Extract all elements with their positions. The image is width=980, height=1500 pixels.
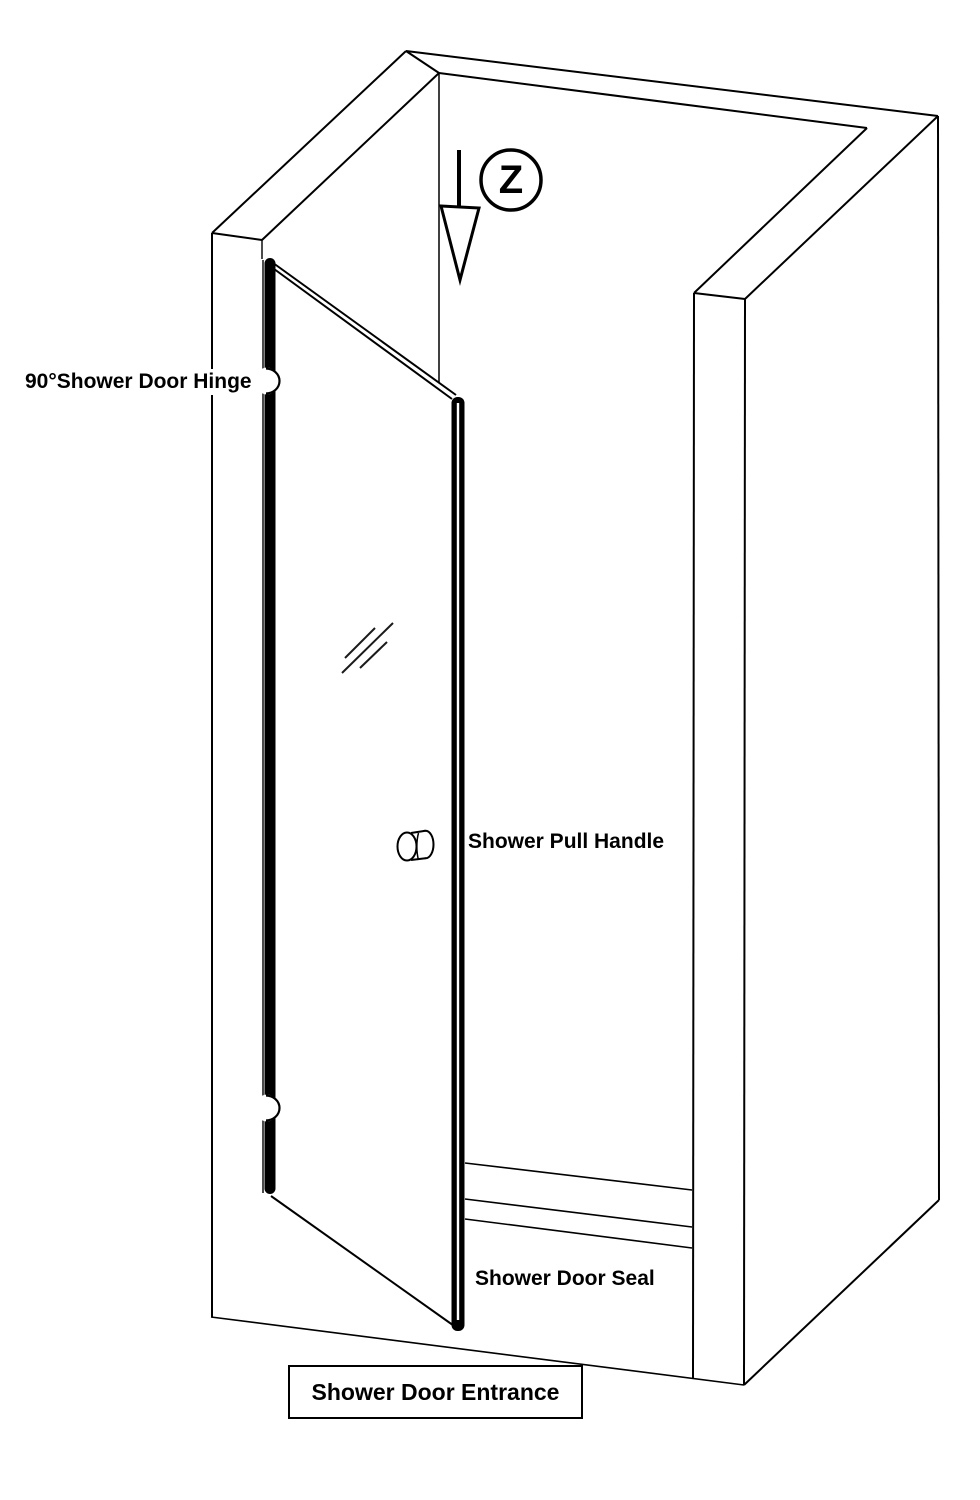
left-wall-top-inner-edge: [262, 73, 439, 240]
shower-door: [256, 258, 465, 1331]
left-wall-front-top-edge: [212, 233, 262, 240]
back-wall-top-outer-edge: [406, 51, 938, 116]
lower-door-hinge-icon: [256, 1095, 280, 1122]
right-wall-outer-edge: [938, 116, 939, 1200]
right-wall-top-inner-edge: [694, 128, 867, 293]
right-wall-bottom-edge: [744, 1200, 939, 1385]
entrance-caption-box: Shower Door Entrance: [288, 1365, 583, 1419]
hinge-callout-label: 90°Shower Door Hinge: [22, 369, 255, 395]
right-wall-front-top-edge: [694, 293, 745, 299]
hinge-side-rail: [265, 258, 276, 1194]
door-seal-callout-label: Shower Door Seal: [472, 1266, 658, 1292]
right-wall-front-inner-edge: [693, 293, 694, 1378]
right-wall-front-outer-edge: [744, 299, 745, 1385]
section-marker-letter: Z: [489, 158, 533, 202]
shower-curb-top-back-edge: [465, 1163, 692, 1190]
pull-handle-icon: [398, 831, 434, 861]
entrance-caption-text: Shower Door Entrance: [312, 1379, 560, 1406]
upper-door-hinge-icon: [256, 368, 280, 395]
shower-door-diagram: 90°Shower Door Hinge Shower Pull Handle …: [0, 0, 980, 1500]
door-seal-highlight: [457, 403, 459, 1320]
right-wall-top-outer-edge: [745, 116, 938, 299]
left-wall-top-outer-edge: [212, 51, 406, 233]
handle-knob-face: [398, 833, 417, 861]
section-arrow-head: [441, 206, 479, 280]
pull-handle-callout-label: Shower Pull Handle: [465, 829, 667, 855]
door-glass-panel: [264, 259, 458, 1329]
